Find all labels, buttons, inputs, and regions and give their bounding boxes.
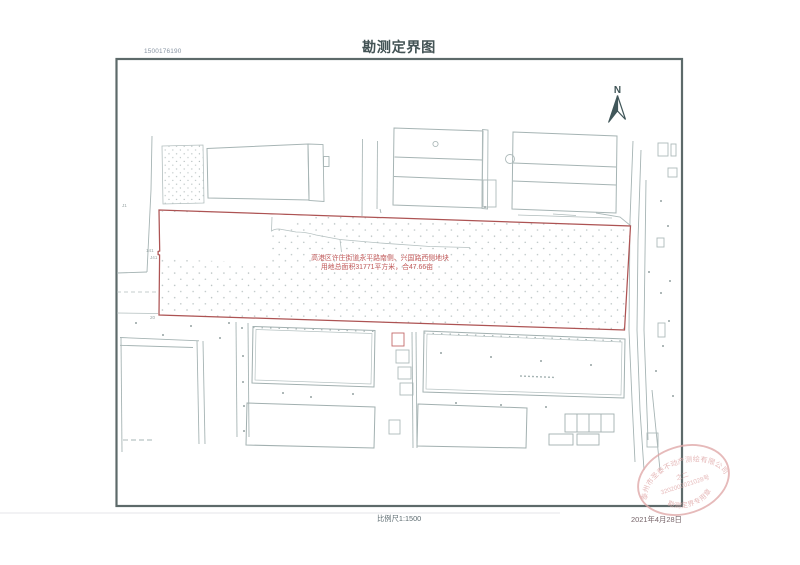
svg-text:141: 141 <box>146 248 154 253</box>
svg-text:J1: J1 <box>122 203 127 208</box>
svg-text:用地总面积31771平方米，合47.66亩: 用地总面积31771平方米，合47.66亩 <box>321 262 433 271</box>
svg-text:N: N <box>614 85 621 96</box>
svg-text:J41: J41 <box>150 255 158 260</box>
svg-text:20: 20 <box>150 315 156 320</box>
svg-text:1500176190: 1500176190 <box>144 48 182 55</box>
svg-text:勘测定界图: 勘测定界图 <box>362 39 436 56</box>
svg-text:比例尺1:1500: 比例尺1:1500 <box>377 514 421 523</box>
svg-text:2021年4月28日: 2021年4月28日 <box>631 515 682 524</box>
svg-text:高港区许庄街道永平路南侧、兴国路西侧地块: 高港区许庄街道永平路南侧、兴国路西侧地块 <box>311 253 449 262</box>
